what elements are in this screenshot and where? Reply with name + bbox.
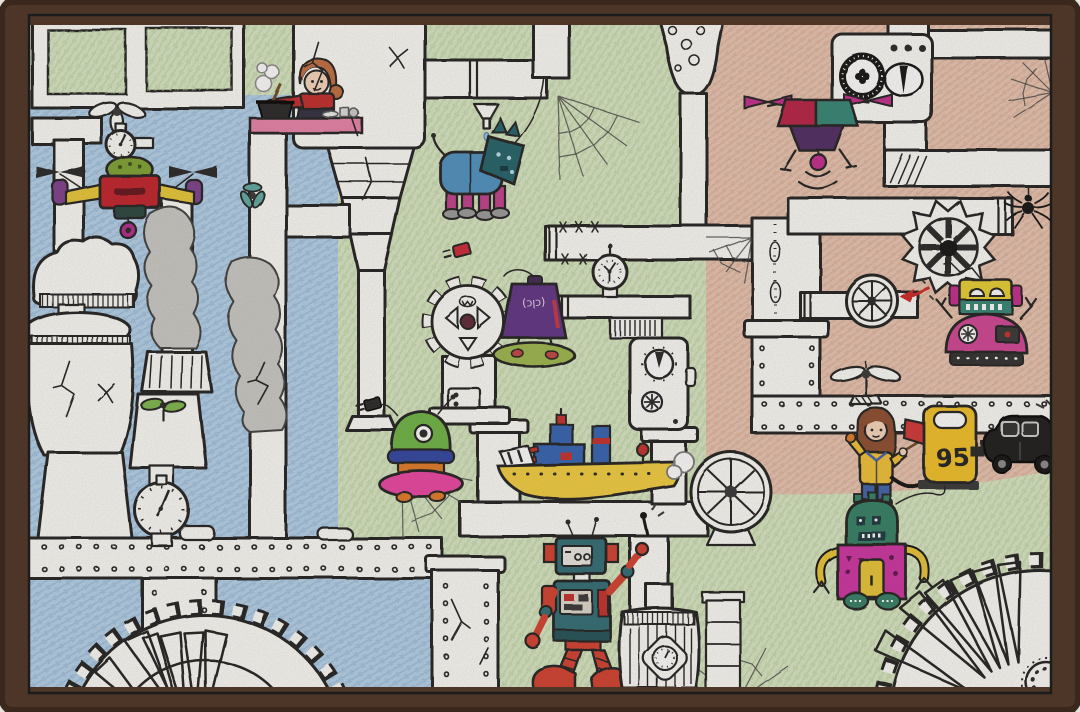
paper-grain (28, 14, 1054, 694)
drawing: (כןכ) (0, 0, 1080, 712)
artwork-canvas: (כןכ) (0, 0, 1080, 712)
